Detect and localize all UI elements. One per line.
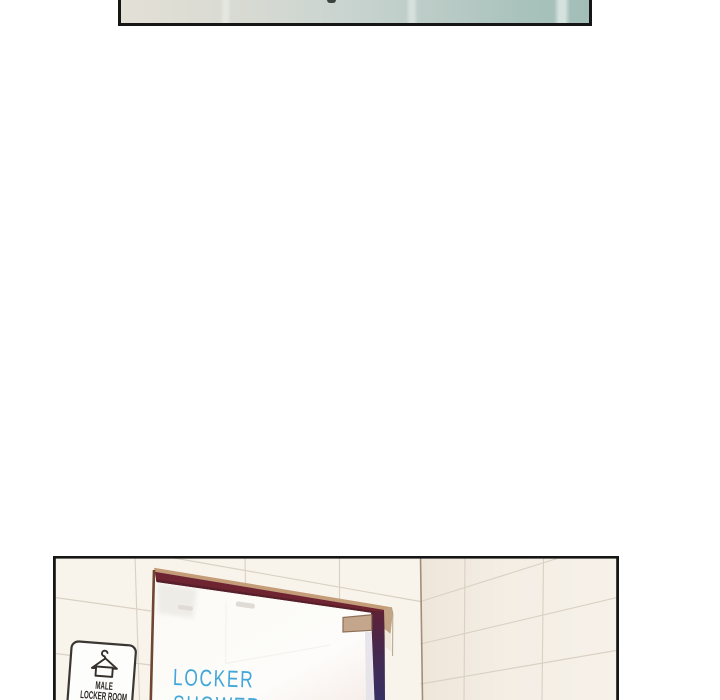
- svg-text:LOCKER: LOCKER: [173, 665, 255, 694]
